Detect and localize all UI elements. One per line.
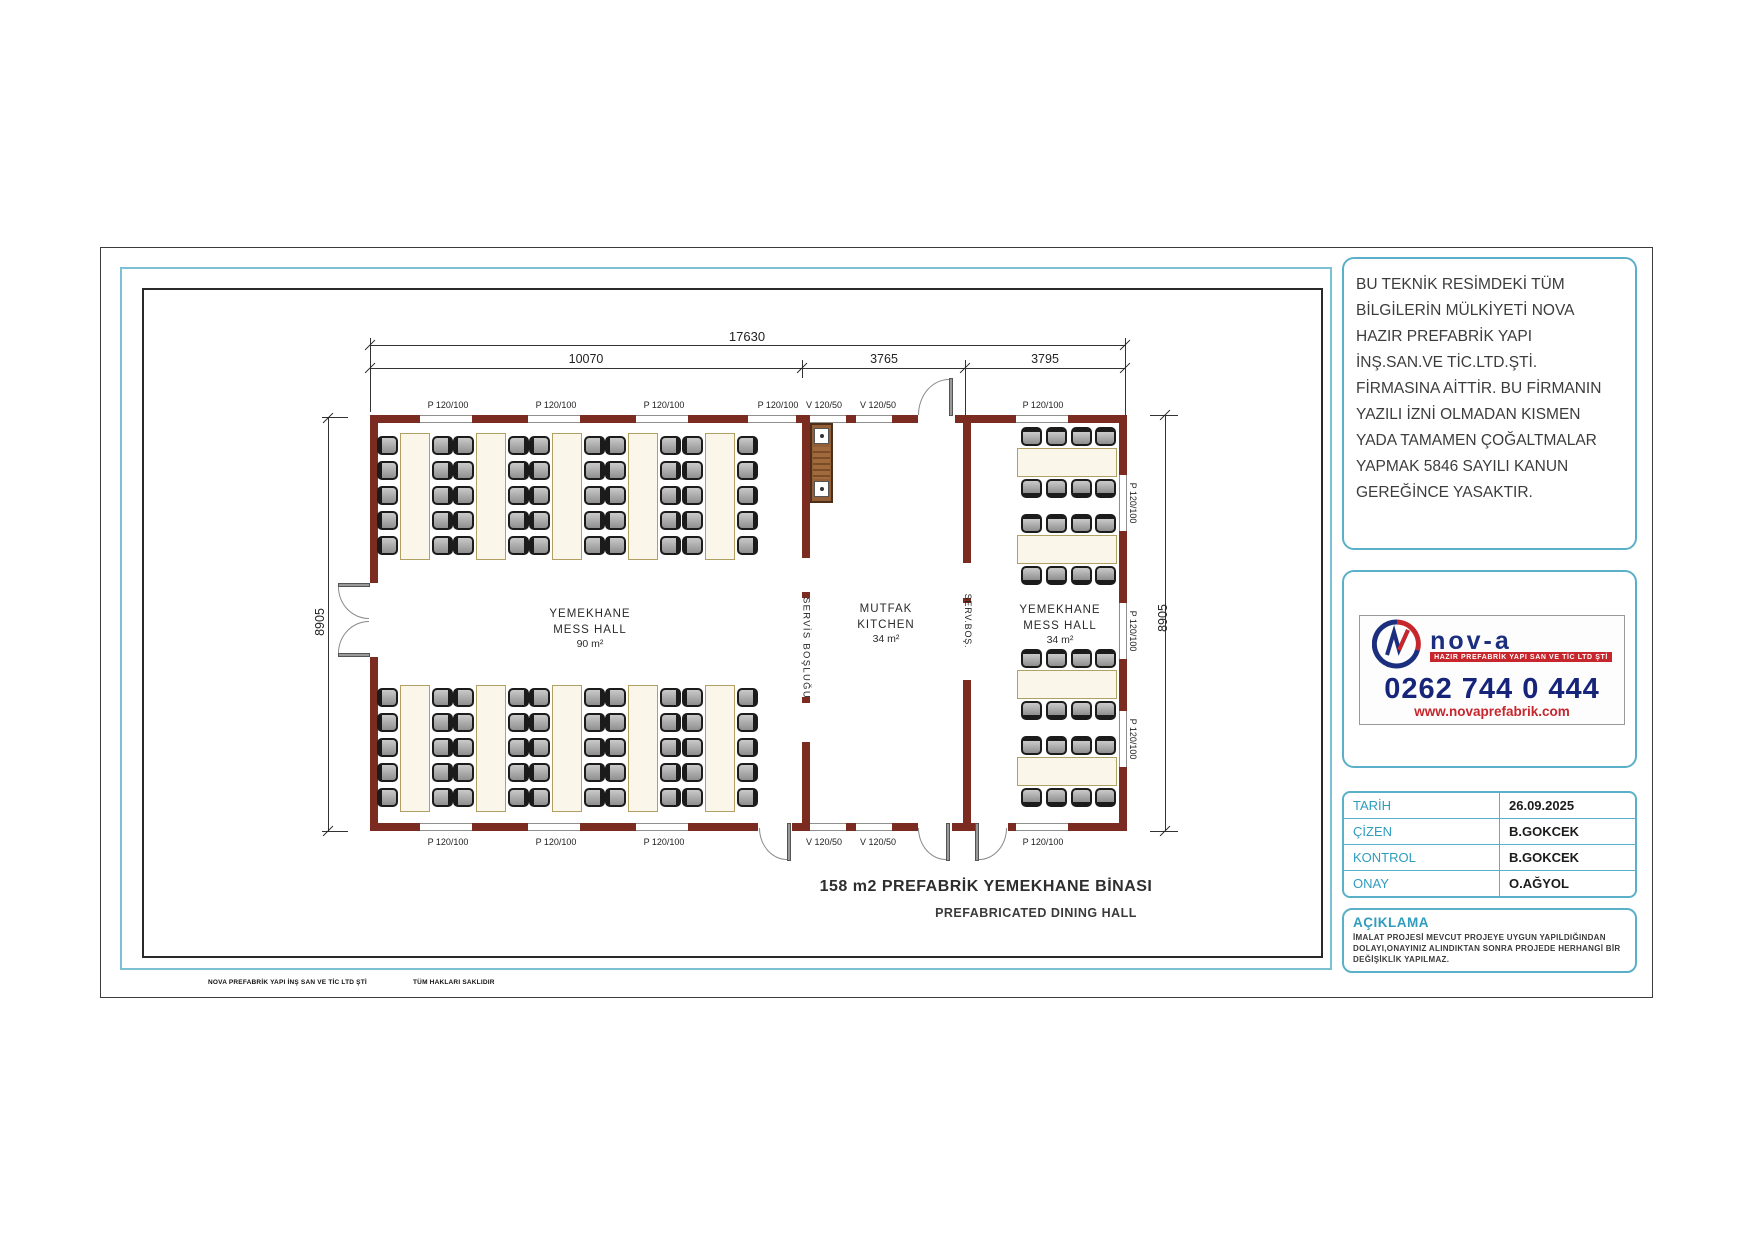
row-label-cizen: ÇİZEN bbox=[1344, 819, 1500, 844]
chair bbox=[1021, 427, 1042, 446]
chair bbox=[605, 763, 626, 782]
row-label-kontrol: KONTROL bbox=[1344, 845, 1500, 870]
chair bbox=[682, 738, 703, 757]
chair bbox=[1021, 479, 1042, 498]
chair bbox=[377, 688, 398, 707]
chair bbox=[1021, 701, 1042, 720]
company-logo: nov-a HAZIR PREFABRİK YAPI SAN VE TİC LT… bbox=[1359, 615, 1625, 725]
dim-right-height: 8905 bbox=[1156, 604, 1170, 632]
window-label: P 120/100 bbox=[536, 837, 577, 847]
chair bbox=[1071, 736, 1092, 755]
window-label: P 120/100 bbox=[1023, 837, 1064, 847]
chair bbox=[605, 461, 626, 480]
chair bbox=[1095, 736, 1116, 755]
chair bbox=[453, 763, 474, 782]
door-opening bbox=[918, 415, 955, 423]
chair bbox=[1046, 649, 1067, 668]
chair bbox=[737, 763, 758, 782]
window-label: P 120/100 bbox=[644, 400, 685, 410]
chair bbox=[584, 738, 605, 757]
chair bbox=[529, 788, 550, 807]
chair bbox=[1071, 649, 1092, 668]
chair bbox=[737, 536, 758, 555]
chair bbox=[737, 688, 758, 707]
dining-table bbox=[476, 433, 506, 560]
window bbox=[748, 415, 796, 423]
room-label-mess-hall-34: YEMEKHANE MESS HALL 34 m² bbox=[1019, 604, 1100, 646]
copyright-notice-panel: BU TEKNİK RESİMDEKİ TÜM BİLGİLERİN MÜLKİ… bbox=[1342, 257, 1637, 550]
table-row: KONTROL B.GOKCEK bbox=[1344, 844, 1635, 870]
chair bbox=[737, 461, 758, 480]
chair bbox=[584, 436, 605, 455]
chair bbox=[660, 763, 681, 782]
window-label: P 120/100 bbox=[536, 400, 577, 410]
chair bbox=[508, 788, 529, 807]
stove-unit bbox=[814, 481, 829, 497]
chair bbox=[660, 688, 681, 707]
chair bbox=[660, 536, 681, 555]
chair bbox=[529, 738, 550, 757]
chair bbox=[605, 536, 626, 555]
chair bbox=[377, 738, 398, 757]
window bbox=[1016, 415, 1068, 423]
window-label: P 120/100 bbox=[1023, 400, 1064, 410]
window-label: P 120/100 bbox=[428, 837, 469, 847]
chair bbox=[377, 511, 398, 530]
chair bbox=[453, 486, 474, 505]
chair bbox=[737, 436, 758, 455]
chair bbox=[508, 536, 529, 555]
chair bbox=[432, 511, 453, 530]
chair bbox=[605, 713, 626, 732]
window-label: P 120/100 bbox=[428, 400, 469, 410]
dim-total-width: 17630 bbox=[729, 329, 765, 344]
door-opening bbox=[370, 583, 378, 657]
table-row: ONAY O.AĞYOL bbox=[1344, 870, 1635, 896]
chair bbox=[660, 486, 681, 505]
window bbox=[636, 415, 688, 423]
window bbox=[636, 823, 688, 831]
chair bbox=[1071, 788, 1092, 807]
window bbox=[810, 823, 846, 831]
copyright-text: BU TEKNİK RESİMDEKİ TÜM BİLGİLERİN MÜLKİ… bbox=[1356, 276, 1601, 501]
chair bbox=[682, 763, 703, 782]
counter-top bbox=[813, 447, 830, 479]
chair bbox=[1071, 479, 1092, 498]
window bbox=[1119, 603, 1127, 659]
chair bbox=[432, 688, 453, 707]
room-label-kitchen: MUTFAK KITCHEN 34 m² bbox=[857, 603, 914, 645]
chair bbox=[584, 536, 605, 555]
chair bbox=[508, 461, 529, 480]
chair bbox=[377, 713, 398, 732]
chair bbox=[605, 738, 626, 757]
table-row: TARİH 26.09.2025 bbox=[1344, 793, 1635, 818]
chair bbox=[1021, 736, 1042, 755]
window-label: P 120/100 bbox=[644, 837, 685, 847]
dining-table bbox=[552, 685, 582, 812]
chair bbox=[682, 511, 703, 530]
chair bbox=[682, 461, 703, 480]
chair bbox=[1095, 566, 1116, 585]
phone-number: 0262 744 0 444 bbox=[1360, 674, 1624, 704]
door-leaf bbox=[787, 823, 791, 861]
dining-table bbox=[628, 685, 658, 812]
chair bbox=[584, 688, 605, 707]
dining-table bbox=[705, 685, 735, 812]
chair bbox=[1095, 427, 1116, 446]
remarks-title: AÇIKLAMA bbox=[1353, 915, 1626, 930]
chair bbox=[605, 688, 626, 707]
door-leaf bbox=[338, 653, 370, 657]
chair bbox=[584, 461, 605, 480]
window bbox=[528, 415, 580, 423]
chair bbox=[605, 486, 626, 505]
dim-left-height: 8905 bbox=[313, 608, 327, 636]
chair bbox=[377, 461, 398, 480]
window-label: P 120/100 bbox=[1128, 483, 1138, 524]
window bbox=[1016, 823, 1068, 831]
chair bbox=[453, 738, 474, 757]
chair bbox=[453, 713, 474, 732]
company-logo-panel: nov-a HAZIR PREFABRİK YAPI SAN VE TİC LT… bbox=[1342, 570, 1637, 768]
plan-subtitle: PREFABRICATED DINING HALL bbox=[935, 906, 1137, 920]
chair bbox=[432, 763, 453, 782]
dining-table bbox=[400, 685, 430, 812]
window-label: P 120/100 bbox=[1128, 719, 1138, 760]
chair bbox=[660, 511, 681, 530]
drawing-sheet: 17630 10070 3765 3795 8905 8905 bbox=[0, 0, 1755, 1240]
service-opening bbox=[802, 558, 810, 592]
chair bbox=[1046, 736, 1067, 755]
chair bbox=[377, 536, 398, 555]
chair bbox=[432, 461, 453, 480]
door-leaf bbox=[949, 378, 953, 416]
chair bbox=[1046, 479, 1067, 498]
chair bbox=[1071, 701, 1092, 720]
dim-line-left-height bbox=[328, 418, 329, 831]
window-label: V 120/50 bbox=[860, 837, 896, 847]
chair bbox=[529, 536, 550, 555]
dining-table bbox=[1017, 670, 1117, 699]
chair bbox=[432, 486, 453, 505]
dining-table bbox=[628, 433, 658, 560]
dining-table bbox=[400, 433, 430, 560]
chair bbox=[508, 738, 529, 757]
nova-circle-logo-icon bbox=[1372, 619, 1422, 674]
chair bbox=[584, 511, 605, 530]
window-label: V 120/50 bbox=[806, 837, 842, 847]
row-label-onay: ONAY bbox=[1344, 871, 1500, 896]
chair bbox=[1046, 514, 1067, 533]
window bbox=[528, 823, 580, 831]
chair bbox=[453, 536, 474, 555]
dining-table bbox=[1017, 757, 1117, 786]
chair bbox=[1021, 514, 1042, 533]
chair bbox=[453, 788, 474, 807]
dining-table bbox=[1017, 448, 1117, 477]
dim-right-width: 3795 bbox=[1031, 352, 1059, 366]
dim-ext-line bbox=[1125, 338, 1126, 417]
chair bbox=[1095, 514, 1116, 533]
kitchen-counter bbox=[810, 423, 833, 503]
window bbox=[420, 823, 472, 831]
website-url: www.novaprefabrik.com bbox=[1360, 704, 1624, 720]
chair bbox=[682, 436, 703, 455]
corridor-label-serv-bos: SERV.BOŞ. bbox=[963, 594, 973, 649]
chair bbox=[682, 688, 703, 707]
window-label: P 120/100 bbox=[758, 400, 799, 410]
chair bbox=[453, 461, 474, 480]
brand-wordmark: nov-a bbox=[1430, 630, 1612, 652]
chair bbox=[605, 511, 626, 530]
chair bbox=[1095, 788, 1116, 807]
window bbox=[856, 415, 892, 423]
chair bbox=[529, 436, 550, 455]
chair bbox=[660, 738, 681, 757]
chair bbox=[508, 688, 529, 707]
window bbox=[420, 415, 472, 423]
door-leaf bbox=[946, 823, 950, 861]
dining-table bbox=[552, 433, 582, 560]
window bbox=[1119, 475, 1127, 531]
title-block-table: TARİH 26.09.2025 ÇİZEN B.GOKCEK KONTROL … bbox=[1342, 791, 1637, 898]
chair bbox=[660, 713, 681, 732]
chair bbox=[377, 486, 398, 505]
chair bbox=[584, 713, 605, 732]
chair bbox=[682, 486, 703, 505]
chair bbox=[1046, 566, 1067, 585]
footer-company-text: NOVA PREFABRİK YAPI İNŞ SAN VE TİC LTD Ş… bbox=[208, 979, 367, 986]
sink-unit bbox=[814, 428, 829, 444]
remarks-panel: AÇIKLAMA İMALAT PROJESİ MEVCUT PROJEYE U… bbox=[1342, 908, 1637, 973]
chair bbox=[508, 763, 529, 782]
chair bbox=[508, 436, 529, 455]
chair bbox=[508, 511, 529, 530]
chair bbox=[682, 713, 703, 732]
corridor-label-servis-boslugu: SERVİS BOŞLUĞU bbox=[801, 597, 812, 699]
chair bbox=[660, 461, 681, 480]
chair bbox=[660, 788, 681, 807]
room-label-mess-hall-90: YEMEKHANE MESS HALL 90 m² bbox=[549, 608, 630, 650]
chair bbox=[377, 763, 398, 782]
window bbox=[856, 823, 892, 831]
row-value-onay: O.AĞYOL bbox=[1500, 876, 1569, 891]
dim-line-segments bbox=[370, 368, 1125, 369]
row-value-kontrol: B.GOKCEK bbox=[1500, 850, 1579, 865]
chair bbox=[432, 536, 453, 555]
brand-tagline: HAZIR PREFABRİK YAPI SAN VE TİC LTD ŞTİ bbox=[1430, 652, 1612, 662]
chair bbox=[508, 713, 529, 732]
remarks-body: İMALAT PROJESİ MEVCUT PROJEYE UYGUN YAPI… bbox=[1353, 932, 1626, 965]
chair bbox=[605, 788, 626, 807]
chair bbox=[1095, 649, 1116, 668]
chair bbox=[1071, 427, 1092, 446]
dining-table bbox=[705, 433, 735, 560]
window-label: P 120/100 bbox=[1128, 611, 1138, 652]
chair bbox=[432, 788, 453, 807]
chair bbox=[508, 486, 529, 505]
chair bbox=[1071, 566, 1092, 585]
dim-left-width: 10070 bbox=[569, 352, 604, 366]
chair bbox=[605, 436, 626, 455]
plan-title: 158 m2 PREFABRİK YEMEKHANE BİNASI bbox=[820, 878, 1153, 896]
service-opening bbox=[802, 703, 810, 742]
chair bbox=[584, 486, 605, 505]
chair bbox=[1071, 514, 1092, 533]
chair bbox=[1021, 788, 1042, 807]
chair bbox=[1046, 427, 1067, 446]
chair bbox=[529, 511, 550, 530]
row-label-tarih: TARİH bbox=[1344, 793, 1500, 818]
chair bbox=[1095, 701, 1116, 720]
chair bbox=[737, 713, 758, 732]
chair bbox=[453, 436, 474, 455]
chair bbox=[377, 788, 398, 807]
chair bbox=[1021, 649, 1042, 668]
dining-table bbox=[476, 685, 506, 812]
dim-mid-width: 3765 bbox=[870, 352, 898, 366]
chair bbox=[737, 486, 758, 505]
window bbox=[1119, 711, 1127, 767]
chair bbox=[1046, 788, 1067, 807]
chair bbox=[453, 511, 474, 530]
chair bbox=[529, 486, 550, 505]
chair bbox=[529, 763, 550, 782]
chair bbox=[660, 436, 681, 455]
dining-table bbox=[1017, 535, 1117, 564]
chair bbox=[737, 788, 758, 807]
chair bbox=[529, 713, 550, 732]
row-value-tarih: 26.09.2025 bbox=[1500, 798, 1574, 813]
chair bbox=[682, 536, 703, 555]
chair bbox=[1046, 701, 1067, 720]
chair bbox=[529, 461, 550, 480]
chair bbox=[584, 788, 605, 807]
chair bbox=[377, 436, 398, 455]
chair bbox=[737, 511, 758, 530]
dim-ext-line bbox=[370, 338, 371, 412]
footer-rights-text: TÜM HAKLARI SAKLIDIR bbox=[413, 979, 495, 986]
chair bbox=[529, 688, 550, 707]
chair bbox=[1021, 566, 1042, 585]
chair bbox=[432, 738, 453, 757]
chair bbox=[737, 738, 758, 757]
row-value-cizen: B.GOKCEK bbox=[1500, 824, 1579, 839]
dim-ext-line bbox=[802, 360, 803, 378]
dim-line-total bbox=[370, 345, 1125, 346]
chair bbox=[453, 688, 474, 707]
chair bbox=[1095, 479, 1116, 498]
chair bbox=[432, 713, 453, 732]
window-label: V 120/50 bbox=[806, 400, 842, 410]
chair bbox=[432, 436, 453, 455]
chair bbox=[682, 788, 703, 807]
chair bbox=[584, 763, 605, 782]
table-row: ÇİZEN B.GOKCEK bbox=[1344, 818, 1635, 844]
window-label: V 120/50 bbox=[860, 400, 896, 410]
window bbox=[810, 415, 846, 423]
